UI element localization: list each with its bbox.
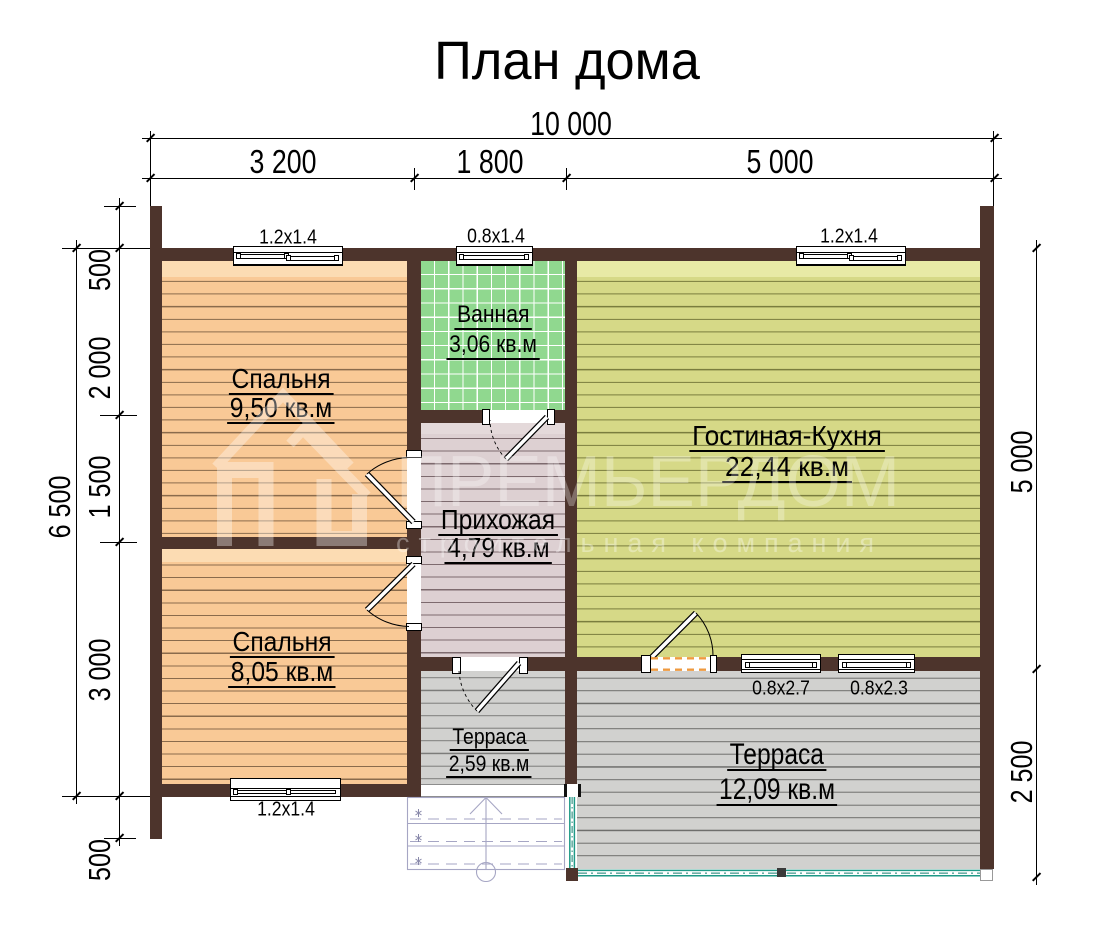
svg-text:строительная компания: строительная компания [396,528,874,558]
svg-text:ПРЕМЬЕРДОМ: ПРЕМЬЕРДОМ [396,442,900,522]
